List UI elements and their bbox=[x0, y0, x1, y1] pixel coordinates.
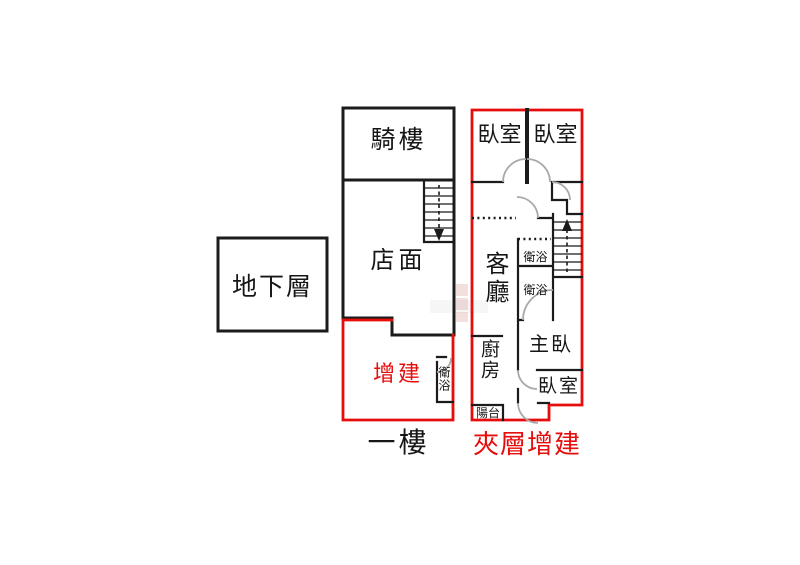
mezzanine-caption: 夾層增建 bbox=[467, 427, 587, 457]
master-bedroom-label: 主臥 bbox=[520, 330, 582, 355]
kitchen-label: 廚房 bbox=[476, 339, 503, 381]
storefront-label: 店面 bbox=[343, 242, 454, 272]
arcade-label: 騎樓 bbox=[343, 118, 454, 158]
stairs-up-arrowhead bbox=[562, 219, 572, 231]
bedroom-left-door-arc bbox=[503, 159, 526, 182]
floor-plan: 地下層 騎樓 店面 增建 衛浴 一樓 臥室 臥室 客廳 衛浴 衛浴 主臥 廚房 … bbox=[0, 0, 800, 565]
floor1-bathroom-label: 衛浴 bbox=[436, 366, 453, 392]
bedroom-top-right-label: 臥室 bbox=[529, 119, 582, 147]
floor-plan-drawing bbox=[0, 0, 800, 565]
living-room-door-arc bbox=[517, 197, 538, 218]
bedroom-right-door-arc bbox=[527, 159, 550, 182]
stairs-down-arrowhead bbox=[434, 229, 444, 241]
floor1-caption: 一樓 bbox=[343, 426, 454, 456]
bedroom-lower-label: 臥室 bbox=[533, 373, 585, 396]
bathroom-upper-label: 衛浴 bbox=[518, 248, 553, 265]
living-room-label: 客廳 bbox=[478, 251, 513, 307]
basement-label: 地下層 bbox=[218, 238, 327, 331]
stair-niche-door-arc bbox=[552, 182, 570, 200]
bedroom-top-left-label: 臥室 bbox=[472, 119, 527, 147]
mezzanine-open-boundary-lines bbox=[472, 218, 551, 239]
balcony-label: 陽台 bbox=[473, 404, 503, 420]
bathroom-lower-label: 衛浴 bbox=[518, 281, 553, 298]
